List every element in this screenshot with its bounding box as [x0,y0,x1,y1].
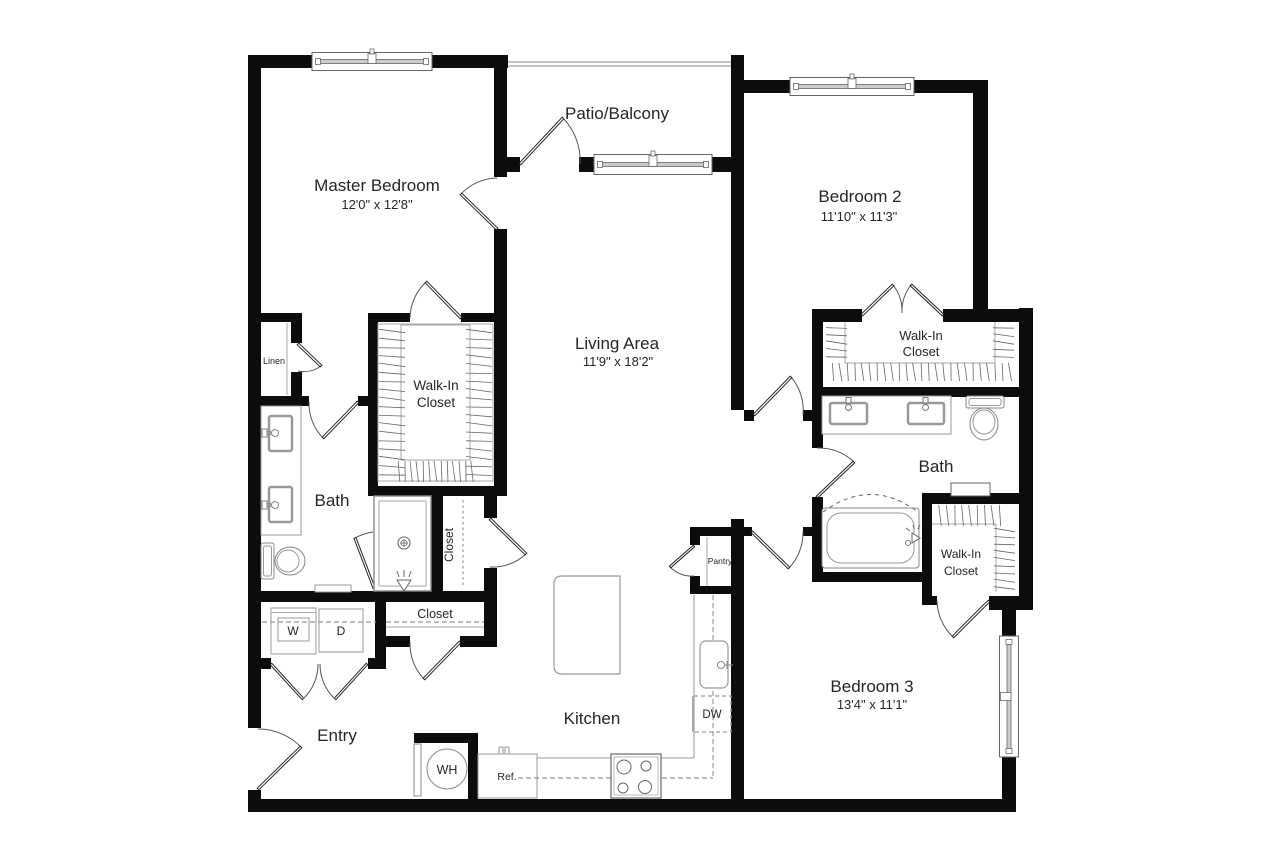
svg-text:Closet: Closet [442,527,456,562]
svg-text:Bedroom 2: Bedroom 2 [818,187,901,206]
svg-text:D: D [337,624,346,638]
svg-text:12'0" x 12'8": 12'0" x 12'8" [341,197,413,212]
svg-text:Closet: Closet [903,344,940,359]
svg-text:11'9" x 18'2": 11'9" x 18'2" [583,354,654,369]
svg-text:Ref.: Ref. [497,771,516,783]
svg-text:Walk-In: Walk-In [413,378,458,393]
svg-text:W: W [287,624,299,638]
svg-text:Walk-In: Walk-In [899,328,943,343]
svg-text:Patio/Balcony: Patio/Balcony [565,104,669,123]
svg-text:Walk-In: Walk-In [941,547,981,561]
svg-text:Entry: Entry [317,726,357,745]
svg-text:Bath: Bath [315,491,350,510]
svg-text:Bedroom 3: Bedroom 3 [830,677,913,696]
svg-text:Closet: Closet [417,395,456,410]
svg-text:13'4" x 11'1": 13'4" x 11'1" [837,697,908,712]
svg-text:Master Bedroom: Master Bedroom [314,176,440,195]
svg-text:Linen: Linen [263,356,285,366]
svg-text:WH: WH [437,763,458,777]
svg-text:DW: DW [702,709,721,721]
svg-text:11'10" x 11'3": 11'10" x 11'3" [821,209,898,224]
svg-text:Closet: Closet [944,564,979,578]
svg-text:Pantry: Pantry [708,556,733,566]
svg-text:Closet: Closet [417,607,453,621]
svg-text:Bath: Bath [919,457,954,476]
svg-text:Living Area: Living Area [575,334,660,353]
svg-text:Kitchen: Kitchen [564,709,621,728]
